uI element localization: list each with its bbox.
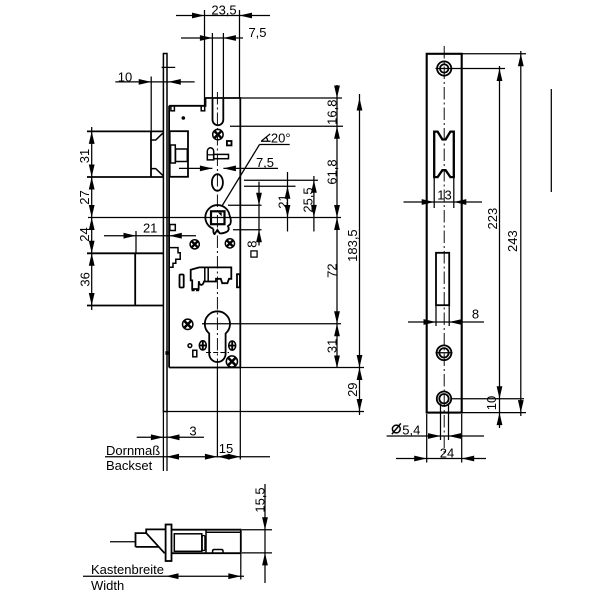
svg-text:15: 15 xyxy=(219,441,233,456)
svg-text:23,5: 23,5 xyxy=(211,3,236,18)
svg-text:24: 24 xyxy=(440,446,454,461)
svg-text:21: 21 xyxy=(275,194,290,208)
svg-text:7,5: 7,5 xyxy=(256,155,274,170)
svg-text:72: 72 xyxy=(325,263,340,277)
svg-text:20°: 20° xyxy=(271,130,291,145)
svg-text:243: 243 xyxy=(505,230,520,252)
svg-text:25,5: 25,5 xyxy=(300,187,315,212)
svg-text:24: 24 xyxy=(77,227,92,241)
svg-text:8: 8 xyxy=(472,307,479,322)
svg-text:21: 21 xyxy=(143,221,157,236)
svg-text:7,5: 7,5 xyxy=(248,25,266,40)
svg-text:183,5: 183,5 xyxy=(345,229,360,262)
svg-text:16,8: 16,8 xyxy=(325,100,340,125)
svg-text:8: 8 xyxy=(244,241,259,248)
svg-text:Width: Width xyxy=(91,578,124,593)
svg-text:3: 3 xyxy=(189,423,196,438)
svg-text:27: 27 xyxy=(77,190,92,204)
svg-text:36: 36 xyxy=(77,272,92,286)
svg-text:5,4: 5,4 xyxy=(402,422,420,437)
svg-text:Backset: Backset xyxy=(106,458,153,473)
svg-text:13: 13 xyxy=(437,187,451,202)
svg-text:Dornmaß: Dornmaß xyxy=(106,443,160,458)
svg-text:31: 31 xyxy=(325,339,340,353)
svg-text:61,8: 61,8 xyxy=(325,159,340,184)
svg-text:10: 10 xyxy=(118,69,132,84)
svg-text:31: 31 xyxy=(77,149,92,163)
svg-text:29: 29 xyxy=(345,382,360,396)
svg-text:223: 223 xyxy=(485,208,500,230)
svg-text:10: 10 xyxy=(484,396,499,410)
svg-text:Kastenbreite: Kastenbreite xyxy=(91,562,164,577)
svg-text:15,5: 15,5 xyxy=(253,487,268,512)
